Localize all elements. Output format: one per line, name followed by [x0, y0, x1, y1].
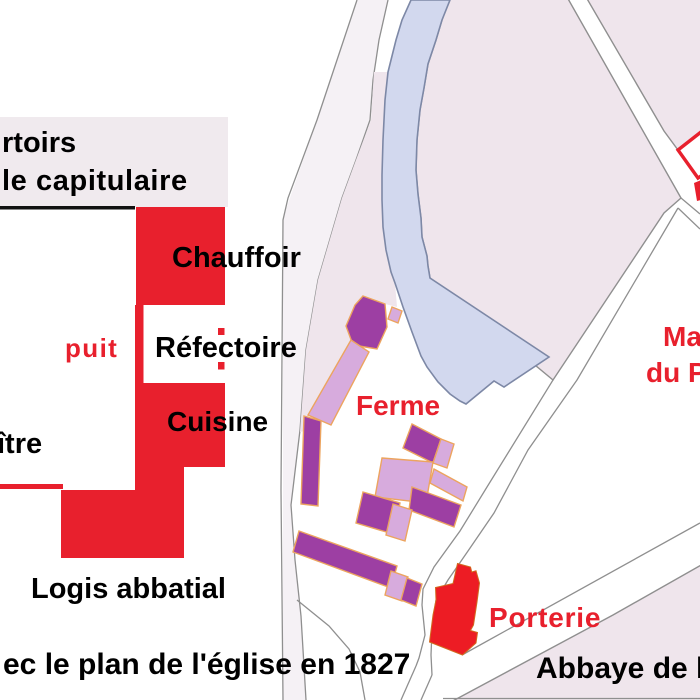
svg-text:Ferme: Ferme [356, 390, 440, 421]
svg-text:du Pr: du Pr [646, 357, 700, 388]
svg-text:Porterie: Porterie [489, 602, 601, 633]
svg-text:Cuisine: Cuisine [167, 406, 268, 437]
svg-text:ec le plan de l'église en 1827: ec le plan de l'église en 1827 [3, 648, 410, 681]
svg-text:rtoirs: rtoirs [2, 127, 76, 159]
svg-text:Mais: Mais [663, 321, 700, 352]
svg-text:ître: ître [0, 428, 42, 460]
svg-text:le capitulaire: le capitulaire [2, 165, 188, 197]
svg-text:Logis abbatial: Logis abbatial [31, 573, 226, 605]
svg-text:Chauffoir: Chauffoir [172, 242, 301, 274]
svg-text:Réfectoire: Réfectoire [155, 332, 297, 364]
svg-text:puit: puit [65, 333, 118, 363]
svg-text:Abbaye de la: Abbaye de la [536, 652, 700, 685]
